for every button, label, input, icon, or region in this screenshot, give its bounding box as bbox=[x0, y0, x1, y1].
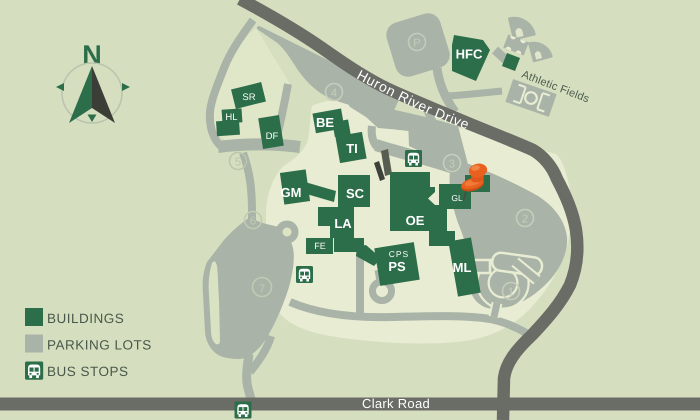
svg-text:TI: TI bbox=[346, 141, 358, 156]
svg-text:2: 2 bbox=[522, 214, 528, 226]
svg-text:4: 4 bbox=[331, 88, 338, 100]
svg-text:GL: GL bbox=[451, 193, 463, 203]
svg-text:ML: ML bbox=[453, 260, 472, 275]
svg-text:P: P bbox=[413, 38, 421, 50]
svg-text:PS: PS bbox=[388, 259, 406, 274]
svg-text:GM: GM bbox=[281, 185, 302, 200]
svg-text:Clark Road: Clark Road bbox=[362, 396, 430, 411]
svg-text:BUILDINGS: BUILDINGS bbox=[47, 311, 124, 326]
svg-text:SC: SC bbox=[346, 186, 365, 201]
svg-text:5: 5 bbox=[235, 157, 241, 169]
svg-text:FE: FE bbox=[314, 241, 326, 251]
svg-text:7: 7 bbox=[259, 284, 265, 296]
svg-text:HFC: HFC bbox=[456, 47, 483, 62]
svg-text:3: 3 bbox=[449, 159, 455, 171]
svg-text:CPS: CPS bbox=[389, 249, 409, 259]
svg-text:BUS STOPS: BUS STOPS bbox=[47, 364, 129, 379]
svg-text:DF: DF bbox=[266, 131, 279, 142]
svg-text:BE: BE bbox=[316, 115, 334, 130]
svg-text:6: 6 bbox=[250, 216, 256, 228]
svg-text:LA: LA bbox=[334, 216, 352, 231]
svg-text:OE: OE bbox=[406, 213, 425, 228]
svg-text:N: N bbox=[82, 40, 102, 70]
svg-text:PARKING LOTS: PARKING LOTS bbox=[47, 338, 152, 353]
svg-text:1: 1 bbox=[508, 287, 514, 299]
svg-text:SR: SR bbox=[242, 92, 255, 103]
